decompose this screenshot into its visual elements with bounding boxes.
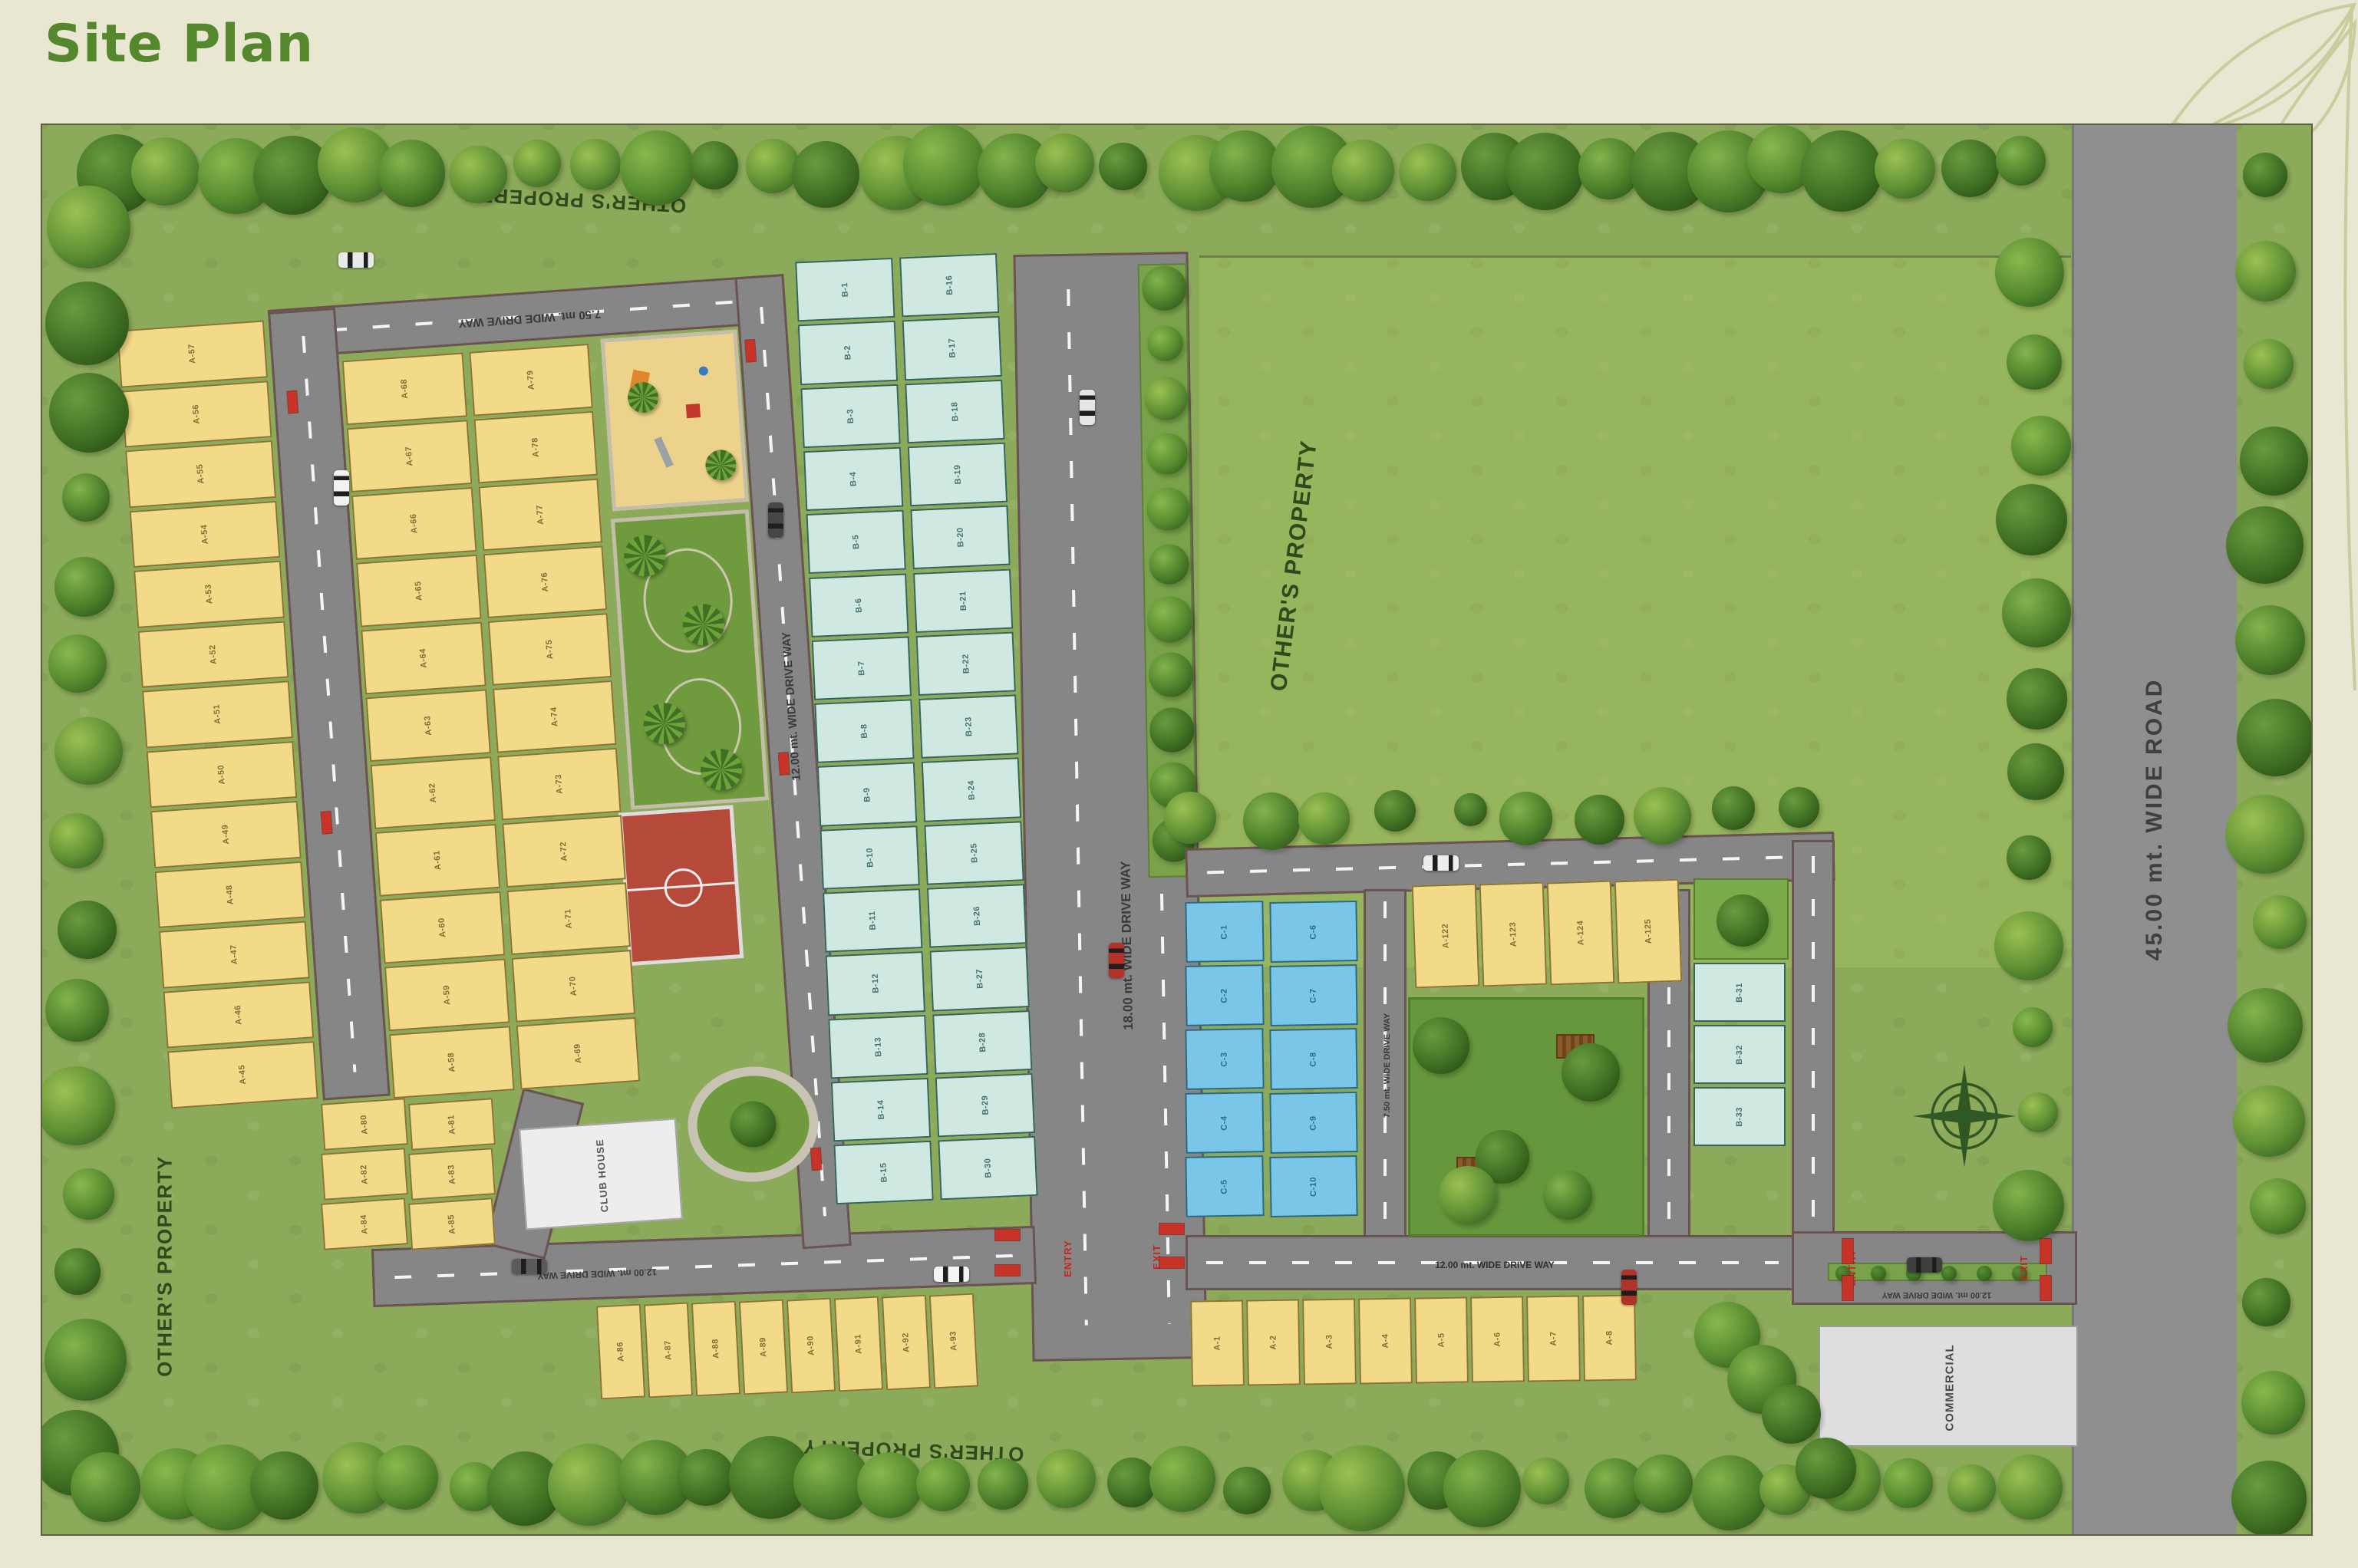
plot-label: A-53: [204, 584, 215, 604]
tree: [1319, 1445, 1404, 1530]
tree: [48, 634, 107, 693]
plot-C-9: C-9: [1269, 1092, 1357, 1154]
plot-label: A-87: [663, 1340, 673, 1360]
plot-A-52: A-52: [138, 621, 289, 688]
plot-A-91: A-91: [834, 1296, 883, 1392]
plot-label: C-6: [1309, 924, 1318, 939]
speed-breaker-marker: [811, 1148, 822, 1170]
court-circle: [663, 867, 704, 908]
car: [338, 252, 374, 268]
tree: [2225, 795, 2304, 874]
tree: [2228, 988, 2302, 1062]
plot-label: B-32: [1735, 1045, 1744, 1065]
plot-A-64: A-64: [361, 622, 486, 695]
compass-icon: [1911, 1062, 2018, 1170]
plot-A-89: A-89: [739, 1300, 788, 1395]
plot-label: A-90: [806, 1336, 816, 1356]
plot-C-3: C-3: [1185, 1028, 1264, 1090]
plot-A-123: A-123: [1479, 882, 1548, 987]
east-bottom-drive-way: 12.00 mt. WIDE DRIVE WAY: [1186, 1235, 1799, 1290]
plot-C-4: C-4: [1185, 1092, 1264, 1154]
tree: [1149, 544, 1190, 585]
tree: [1996, 484, 2068, 556]
plot-label: A-58: [447, 1052, 457, 1072]
tree: [1164, 792, 1216, 844]
tree: [1035, 133, 1094, 193]
plot-A-50: A-50: [147, 741, 298, 809]
tree: [2244, 339, 2294, 389]
plot-label: A-52: [208, 644, 219, 665]
lane-marking: [1067, 289, 1088, 1326]
tree: [1875, 139, 1934, 199]
plot-label: B-28: [978, 1032, 988, 1052]
plot-label: A-75: [545, 639, 556, 660]
plot-B-2: B-2: [798, 321, 898, 385]
tree: [1332, 140, 1394, 202]
plot-B-20: B-20: [910, 506, 1010, 570]
tree: [54, 557, 115, 618]
car: [1109, 943, 1124, 978]
plot-label: B-9: [862, 787, 872, 802]
plot-label: B-19: [952, 464, 962, 484]
plot-label: B-30: [983, 1158, 993, 1178]
plot-label: B-8: [859, 723, 869, 739]
tree: [131, 137, 200, 206]
plot-A-75: A-75: [488, 613, 612, 686]
playground-equipment: [686, 404, 701, 418]
tree: [1634, 1454, 1693, 1514]
playground-equipment: [654, 436, 673, 468]
plot-label: A-45: [237, 1065, 248, 1085]
plot-B-12: B-12: [826, 951, 925, 1016]
tree: [47, 186, 130, 269]
plot-label: A-72: [559, 842, 569, 862]
tree: [2233, 1085, 2305, 1158]
road-median: [1138, 263, 1198, 878]
tree: [1522, 1458, 1569, 1504]
tree: [63, 1168, 114, 1220]
plot-A-59: A-59: [384, 959, 510, 1032]
plot-label: B-11: [868, 911, 878, 931]
plot-A-57: A-57: [117, 320, 268, 387]
tree: [62, 473, 110, 522]
tree: [1997, 1454, 2063, 1520]
plot-A-55: A-55: [125, 440, 276, 508]
plot-label: A-76: [540, 572, 551, 592]
central-park: [1408, 997, 1644, 1237]
plot-label: A-88: [711, 1339, 721, 1359]
gate-marker: [1842, 1276, 1853, 1300]
plot-label: B-26: [972, 906, 982, 926]
plot-A-2: A-2: [1246, 1299, 1301, 1385]
entry-label: ENTRY: [1062, 1240, 1073, 1277]
plot-A-48: A-48: [155, 861, 306, 928]
plot-label: B-12: [870, 973, 880, 993]
plot-label: A-68: [400, 379, 411, 400]
plot-label: A-62: [427, 782, 438, 803]
tree: [1243, 792, 1301, 850]
tree: [1575, 795, 1624, 845]
plot-A-83: A-83: [408, 1148, 496, 1201]
tree: [2253, 895, 2307, 949]
plot-label: A-123: [1508, 922, 1518, 947]
plot-label: A-4: [1380, 1333, 1390, 1348]
plot-label: B-5: [851, 535, 861, 550]
plot-A-71: A-71: [506, 882, 630, 955]
plot-A-66: A-66: [351, 487, 477, 560]
plot-A-51: A-51: [142, 680, 293, 748]
plot-label: A-83: [447, 1164, 457, 1184]
commercial-label: COMMERCIAL: [1944, 1344, 1957, 1431]
plot-label: A-89: [758, 1337, 768, 1357]
plot-A-63: A-63: [365, 689, 490, 762]
plot-label: A-67: [404, 446, 415, 466]
tree: [45, 282, 129, 365]
tree: [1717, 894, 1769, 947]
tree: [1883, 1458, 1933, 1508]
plot-A-87: A-87: [644, 1303, 693, 1398]
plot-label: B-18: [950, 401, 960, 421]
plot-label: A-93: [948, 1331, 958, 1351]
tree: [857, 1452, 923, 1518]
plot-C-6: C-6: [1269, 901, 1357, 963]
speed-breaker-marker: [745, 340, 756, 362]
plot-label: B-29: [980, 1095, 990, 1115]
speed-breaker-marker: [779, 753, 790, 775]
plot-A-53: A-53: [134, 561, 285, 628]
plot-label: B-15: [879, 1163, 889, 1183]
car: [334, 470, 349, 506]
plot-label: A-66: [409, 513, 420, 534]
tree: [1144, 377, 1189, 421]
tree: [1099, 143, 1146, 190]
plot-label: B-13: [873, 1036, 883, 1056]
plot-label: A-54: [200, 524, 210, 545]
tree: [2231, 1461, 2307, 1534]
plot-label: C-3: [1220, 1052, 1229, 1066]
plot-label: A-8: [1604, 1330, 1614, 1345]
tree: [728, 1099, 777, 1148]
plot-A-73: A-73: [497, 748, 621, 821]
plot-C-5: C-5: [1185, 1155, 1264, 1217]
tree: [1399, 143, 1456, 201]
tree: [1149, 707, 1194, 752]
plot-label: A-7: [1548, 1331, 1558, 1346]
tree: [49, 813, 104, 868]
tree: [1298, 792, 1350, 845]
tree: [916, 1458, 970, 1511]
plot-label: A-59: [442, 985, 453, 1006]
plot-label: A-56: [191, 404, 202, 424]
tree: [1413, 1017, 1469, 1073]
tree: [1996, 136, 2046, 186]
plot-A-56: A-56: [121, 380, 272, 448]
plot-label: A-2: [1268, 1335, 1278, 1349]
tree: [1146, 487, 1190, 531]
plot-B-1: B-1: [795, 258, 895, 322]
plot-A-78: A-78: [473, 411, 597, 484]
plot-label: A-63: [423, 715, 434, 736]
plot-label: A-91: [853, 1334, 863, 1354]
tree: [1994, 911, 2063, 980]
plot-label: A-80: [359, 1114, 370, 1135]
plot-label: B-20: [955, 528, 965, 548]
plot-A-81: A-81: [408, 1098, 496, 1151]
tree: [1142, 266, 1186, 311]
tree: [1439, 1166, 1496, 1224]
plot-B-16: B-16: [899, 253, 999, 318]
tree: [792, 141, 859, 209]
plot-label: B-4: [849, 472, 859, 487]
plot-label: B-7: [856, 660, 866, 676]
plot-label: C-2: [1220, 988, 1229, 1003]
estate-top-road-label: 7.50 mt. WIDE DRIVE WAY: [458, 307, 602, 330]
plot-A-76: A-76: [483, 545, 607, 618]
plot-B-30: B-30: [938, 1136, 1037, 1201]
plot-A-46: A-46: [163, 981, 314, 1049]
gate-marker: [995, 1230, 1020, 1240]
garden-park: [611, 509, 769, 810]
plot-label: B-31: [1735, 983, 1744, 1003]
tree: [374, 1445, 438, 1510]
plot-A-47: A-47: [159, 921, 310, 989]
plot-label: C-7: [1309, 988, 1318, 1003]
tree: [1779, 787, 1819, 828]
plot-A-93: A-93: [929, 1293, 978, 1389]
tree: [1947, 1464, 1996, 1513]
plot-A-72: A-72: [502, 815, 625, 888]
plot-label: A-71: [563, 908, 574, 929]
tree: [2243, 153, 2287, 197]
tree: [548, 1444, 630, 1526]
plot-label: A-73: [554, 774, 565, 795]
car: [1621, 1270, 1637, 1305]
plot-label: A-50: [216, 764, 227, 785]
plot-label: C-9: [1309, 1115, 1318, 1130]
plot-A-70: A-70: [512, 950, 635, 1023]
bush: [1977, 1266, 1992, 1281]
tree: [45, 1319, 127, 1401]
gate-marker: [1159, 1257, 1184, 1268]
main-road-label: 45.00 mt. WIDE ROAD: [2142, 678, 2168, 961]
plot-B-14: B-14: [831, 1078, 931, 1142]
tree: [2242, 1278, 2290, 1326]
plot-label: B-21: [958, 591, 968, 611]
plot-label: A-65: [414, 581, 424, 601]
plot-B-29: B-29: [935, 1073, 1035, 1138]
plot-B-9: B-9: [817, 763, 917, 827]
plot-label: C-8: [1309, 1052, 1318, 1066]
plot-label: A-84: [359, 1214, 370, 1234]
plot-B-15: B-15: [833, 1141, 933, 1205]
tree: [1692, 1455, 1767, 1530]
tree: [2007, 668, 2068, 730]
basketball-court: [618, 805, 744, 966]
gate-marker: [1842, 1239, 1853, 1263]
bush: [1871, 1266, 1886, 1281]
car: [512, 1259, 547, 1274]
tree: [1148, 652, 1194, 698]
plot-C-10: C-10: [1269, 1155, 1357, 1217]
plot-label: A-49: [221, 824, 232, 845]
tree: [2007, 835, 2050, 879]
plot-B-33: B-33: [1693, 1087, 1786, 1146]
plot-C-8: C-8: [1269, 1028, 1357, 1090]
plot-C-2: C-2: [1185, 964, 1264, 1026]
plot-A-122: A-122: [1412, 884, 1480, 989]
plot-A-5: A-5: [1414, 1296, 1469, 1383]
plot-label: A-46: [233, 1004, 244, 1025]
plot-label: B-10: [865, 848, 875, 868]
plot-A-67: A-67: [347, 420, 472, 492]
tree: [1037, 1449, 1096, 1508]
plot-A-124: A-124: [1547, 881, 1615, 986]
plot-label: A-3: [1324, 1334, 1334, 1349]
plot-A-1: A-1: [1190, 1300, 1245, 1386]
plot-label: B-16: [945, 275, 955, 295]
tree: [1506, 133, 1584, 210]
plot-B-8: B-8: [814, 699, 914, 763]
plot-label: A-81: [447, 1114, 457, 1135]
tree: [2002, 578, 2071, 647]
plot-A-60: A-60: [380, 891, 505, 964]
tree: [678, 1449, 734, 1506]
car: [768, 502, 783, 538]
teal-plots-block: B-1B-2B-3B-4B-5B-6B-7B-8B-9B-10B-11B-12B…: [795, 253, 1042, 1209]
plot-A-77: A-77: [479, 479, 602, 552]
main-road-45m: 45.00 mt. WIDE ROAD: [2072, 125, 2237, 1534]
tree: [2011, 416, 2071, 476]
plot-B-27: B-27: [930, 947, 1030, 1011]
plot-label: A-47: [229, 944, 239, 965]
access-road-label: 12.00 mt. WIDE DRIVE WAY: [1882, 1290, 1992, 1300]
tree: [1796, 1438, 1856, 1498]
plot-A-69: A-69: [516, 1017, 640, 1090]
plot-label: A-64: [418, 648, 429, 669]
tree: [978, 1458, 1029, 1510]
club-house: CLUB HOUSE: [519, 1118, 683, 1230]
plot-label: A-55: [196, 464, 206, 485]
east-bottom-road-label: 12.00 mt. WIDE DRIVE WAY: [1435, 1260, 1555, 1270]
car: [934, 1267, 969, 1282]
tree: [49, 373, 129, 453]
plot-label: B-33: [1735, 1107, 1744, 1127]
plot-label: B-6: [854, 598, 864, 613]
plot-A-61: A-61: [375, 824, 500, 897]
plot-A-82: A-82: [321, 1148, 408, 1201]
tree: [2018, 1092, 2058, 1132]
plot-B-19: B-19: [908, 443, 1008, 507]
plot-A-85: A-85: [408, 1197, 496, 1250]
plot-B-21: B-21: [913, 568, 1013, 633]
plot-B-31: B-31: [1693, 963, 1786, 1022]
tree: [1146, 596, 1193, 643]
tree: [2007, 334, 2062, 390]
plot-label: B-17: [947, 338, 957, 358]
plot-A-45: A-45: [167, 1041, 318, 1108]
tree: [42, 1066, 115, 1145]
plot-label: A-77: [535, 505, 546, 525]
plot-label: A-51: [213, 704, 223, 725]
plot-A-84: A-84: [321, 1197, 408, 1250]
plot-B-24: B-24: [922, 758, 1021, 822]
plot-label: C-4: [1220, 1115, 1229, 1130]
plot-C-1: C-1: [1185, 901, 1264, 963]
plot-label: B-22: [961, 654, 971, 674]
plot-label: B-1: [840, 282, 850, 298]
plot-A-79: A-79: [469, 344, 592, 417]
plot-label: A-125: [1643, 919, 1653, 944]
palm-tree-icon: [627, 381, 660, 414]
plot-A-6: A-6: [1470, 1296, 1525, 1382]
commercial-building: COMMERCIAL: [1819, 1326, 2078, 1447]
gate-marker: [995, 1265, 1020, 1276]
gate-marker: [2040, 1239, 2051, 1263]
east-drive-way-3: [1792, 840, 1835, 1293]
tree: [250, 1451, 318, 1520]
lane-marking: [1207, 855, 1812, 875]
plot-B-13: B-13: [828, 1015, 928, 1079]
club-house-label: CLUB HOUSE: [594, 1138, 611, 1213]
plot-label: C-1: [1220, 924, 1229, 939]
plot-A-86: A-86: [596, 1304, 645, 1400]
plot-label: B-24: [966, 779, 976, 799]
plot-C-7: C-7: [1269, 964, 1357, 1026]
plot-label: A-124: [1575, 921, 1585, 946]
tree: [1146, 433, 1188, 475]
tree: [2235, 241, 2296, 301]
plot-label: A-78: [530, 437, 541, 458]
plot-label: A-57: [187, 344, 198, 364]
tree: [1209, 130, 1280, 201]
tree: [620, 130, 695, 206]
tree: [1543, 1171, 1591, 1219]
plot-B-23: B-23: [918, 695, 1018, 759]
tree: [746, 139, 800, 193]
plot-label: A-69: [573, 1043, 584, 1064]
plot-A-8: A-8: [1582, 1294, 1637, 1381]
tree: [1443, 1450, 1521, 1527]
speed-breaker-marker: [287, 391, 298, 413]
plot-label: C-10: [1309, 1176, 1318, 1196]
plot-A-68: A-68: [342, 352, 467, 425]
east-drive-way-1: 7.50 mt. WIDE DRIVE WAY: [1364, 889, 1407, 1238]
plot-label: A-74: [549, 707, 560, 727]
plot-A-125: A-125: [1614, 879, 1683, 984]
tree: [1149, 1446, 1215, 1511]
plot-B-28: B-28: [932, 1010, 1032, 1075]
tree: [1995, 238, 2064, 307]
plot-B-5: B-5: [806, 510, 906, 575]
plot-A-62: A-62: [371, 756, 496, 829]
plot-label: A-1: [1212, 1336, 1222, 1350]
plot-label: A-82: [359, 1164, 370, 1184]
green-garden-plot: [1693, 878, 1789, 960]
plot-label: B-25: [969, 843, 979, 863]
playground: [601, 329, 749, 511]
plot-B-18: B-18: [905, 379, 1004, 443]
tree: [58, 901, 117, 960]
plot-A-3: A-3: [1302, 1298, 1357, 1385]
plot-A-58: A-58: [389, 1026, 514, 1099]
others-property-label-left: OTHER'S PROPERTY: [153, 1151, 177, 1382]
plot-B-26: B-26: [927, 884, 1027, 948]
plot-B-25: B-25: [924, 821, 1024, 885]
plot-A-80: A-80: [321, 1098, 408, 1151]
tree: [570, 139, 622, 190]
plot-B-10: B-10: [820, 825, 920, 890]
plot-B-6: B-6: [809, 573, 909, 637]
